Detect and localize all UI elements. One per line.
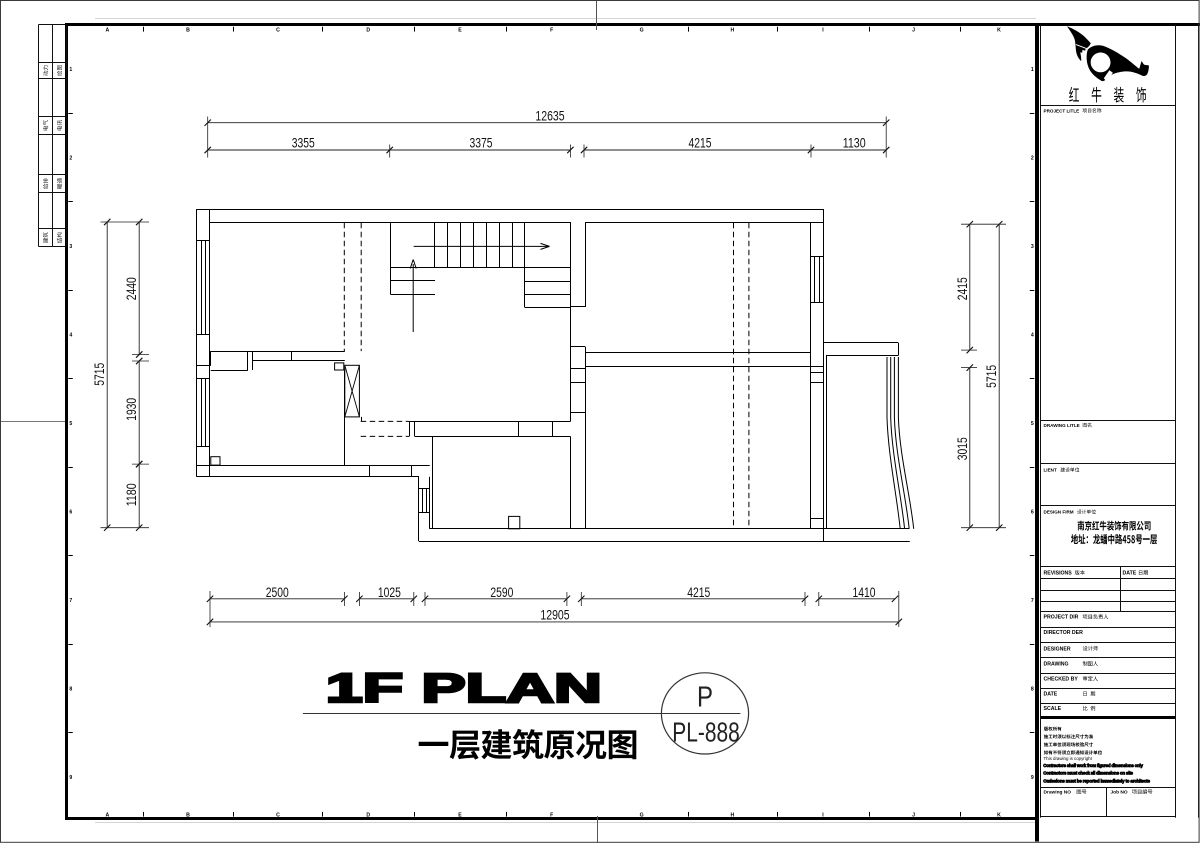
svg-text:1410: 1410: [853, 585, 876, 600]
svg-text:DESIGN FIRM: DESIGN FIRM: [1044, 510, 1074, 515]
svg-text:Contractors shall work from fi: Contractors shall work from figured dime…: [1043, 763, 1143, 768]
svg-text:C: C: [276, 28, 280, 34]
svg-text:G: G: [640, 28, 644, 34]
svg-text:K: K: [997, 812, 1001, 818]
svg-text:G: G: [640, 812, 644, 818]
svg-text:H: H: [731, 28, 735, 34]
svg-text:3375: 3375: [470, 136, 493, 151]
svg-text:SCALE: SCALE: [1044, 706, 1062, 712]
svg-text:Omissions must be reported imm: Omissions must be reported immediately t…: [1043, 778, 1150, 783]
svg-text:1930: 1930: [124, 398, 139, 421]
svg-text:A: A: [106, 812, 110, 818]
svg-text:2500: 2500: [266, 585, 289, 600]
svg-text:CHECKED BY: CHECKED BY: [1044, 677, 1079, 683]
svg-text:2: 2: [1031, 156, 1034, 162]
svg-text:3: 3: [69, 244, 72, 250]
svg-text:H: H: [731, 812, 735, 818]
svg-text:9: 9: [69, 775, 72, 781]
svg-text:8: 8: [1031, 687, 1034, 693]
svg-text:8: 8: [69, 687, 72, 693]
svg-text:REVISIONS: REVISIONS: [1044, 571, 1073, 577]
svg-text:A: A: [106, 28, 110, 34]
svg-text:1: 1: [69, 67, 72, 73]
svg-text:1025: 1025: [378, 585, 401, 600]
svg-text:J: J: [912, 28, 915, 34]
svg-text:B: B: [186, 812, 190, 818]
svg-text:6: 6: [1031, 510, 1034, 516]
svg-text:1F PLAN: 1F PLAN: [326, 665, 602, 711]
svg-text:K: K: [997, 28, 1001, 34]
svg-text:B: B: [186, 28, 190, 34]
svg-text:4215: 4215: [689, 136, 712, 151]
svg-text:2440: 2440: [124, 277, 139, 300]
svg-text:7: 7: [69, 598, 72, 604]
svg-text:DATE: DATE: [1123, 571, 1137, 577]
svg-text:DRAWING: DRAWING: [1044, 662, 1069, 668]
svg-text:F: F: [550, 28, 553, 34]
svg-text:Job NO: Job NO: [1111, 790, 1128, 796]
svg-text:4: 4: [1031, 333, 1034, 339]
svg-text:DIRECTOR DER: DIRECTOR DER: [1044, 630, 1084, 636]
svg-text:P: P: [697, 681, 713, 713]
svg-text:F: F: [550, 812, 553, 818]
svg-text:J: J: [912, 812, 915, 818]
svg-text:5715: 5715: [92, 363, 107, 386]
svg-text:2: 2: [69, 156, 72, 162]
svg-text:2415: 2415: [955, 277, 970, 300]
svg-text:3015: 3015: [955, 437, 970, 460]
svg-text:DATE: DATE: [1044, 692, 1058, 698]
svg-text:E: E: [458, 28, 462, 34]
svg-text:D: D: [366, 812, 370, 818]
svg-text:12905: 12905: [540, 608, 569, 623]
svg-text:12635: 12635: [535, 108, 564, 123]
svg-text:Drawing NO: Drawing NO: [1044, 790, 1072, 796]
svg-text:2590: 2590: [490, 585, 513, 600]
svg-text:4215: 4215: [687, 585, 710, 600]
svg-text:4: 4: [69, 333, 72, 339]
svg-text:PL-888: PL-888: [672, 716, 740, 747]
svg-text:6: 6: [69, 510, 72, 516]
svg-text:DRAWING LITLE: DRAWING LITLE: [1044, 423, 1080, 428]
svg-text:PROJECT DIR: PROJECT DIR: [1044, 615, 1079, 621]
svg-text:5: 5: [1031, 421, 1034, 427]
svg-text:5: 5: [69, 421, 72, 427]
svg-text:1: 1: [1031, 67, 1034, 73]
svg-text:7: 7: [1031, 598, 1034, 604]
svg-text:LIENT: LIENT: [1044, 468, 1057, 473]
svg-text:1180: 1180: [124, 483, 139, 506]
svg-text:9: 9: [1031, 775, 1034, 781]
svg-text:5715: 5715: [984, 365, 999, 388]
svg-text:PROJECT LITLE: PROJECT LITLE: [1044, 108, 1080, 113]
svg-text:E: E: [458, 812, 462, 818]
svg-text:C: C: [276, 812, 280, 818]
svg-text:1130: 1130: [843, 136, 866, 151]
svg-text:Contractors must check all dim: Contractors must check all dimensions on…: [1043, 771, 1133, 776]
svg-text:DESIGNER: DESIGNER: [1044, 646, 1071, 652]
svg-text:This drawing is copyright: This drawing is copyright: [1044, 756, 1093, 761]
svg-text:3: 3: [1031, 244, 1034, 250]
svg-text:D: D: [366, 28, 370, 34]
svg-text:3355: 3355: [292, 136, 315, 151]
